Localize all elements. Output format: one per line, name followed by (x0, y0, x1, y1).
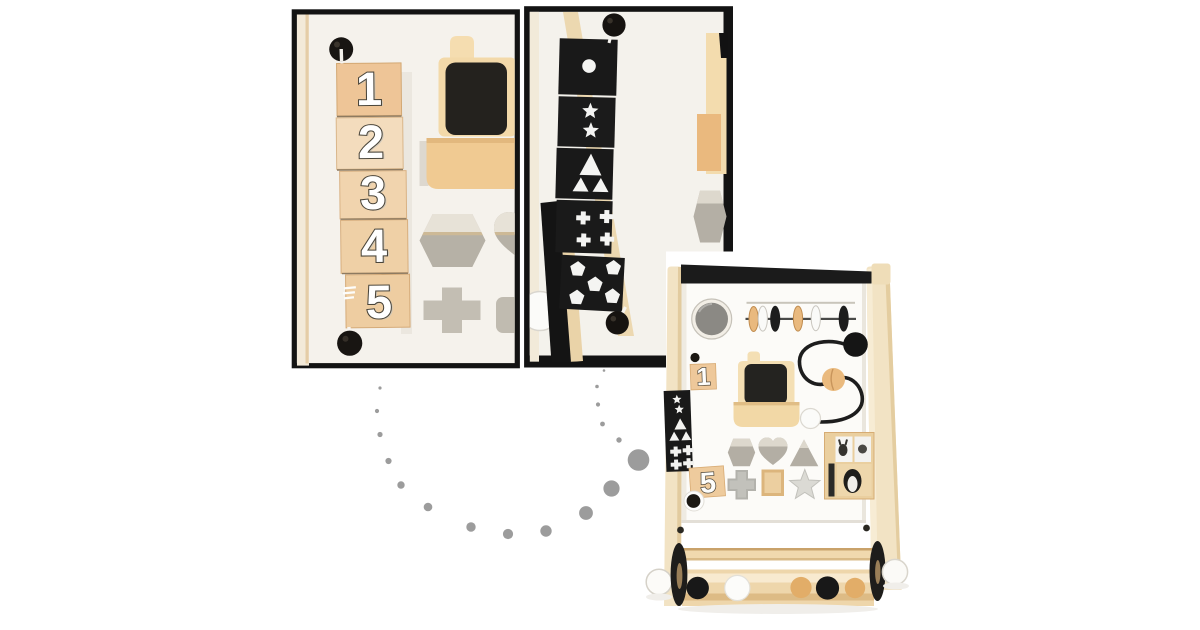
svg-text:1: 1 (356, 62, 383, 115)
svg-text:1: 1 (696, 363, 711, 391)
svg-text:4: 4 (361, 219, 388, 272)
svg-text:3: 3 (360, 166, 387, 219)
svg-text:2: 2 (358, 115, 385, 168)
svg-text:5: 5 (366, 275, 393, 328)
